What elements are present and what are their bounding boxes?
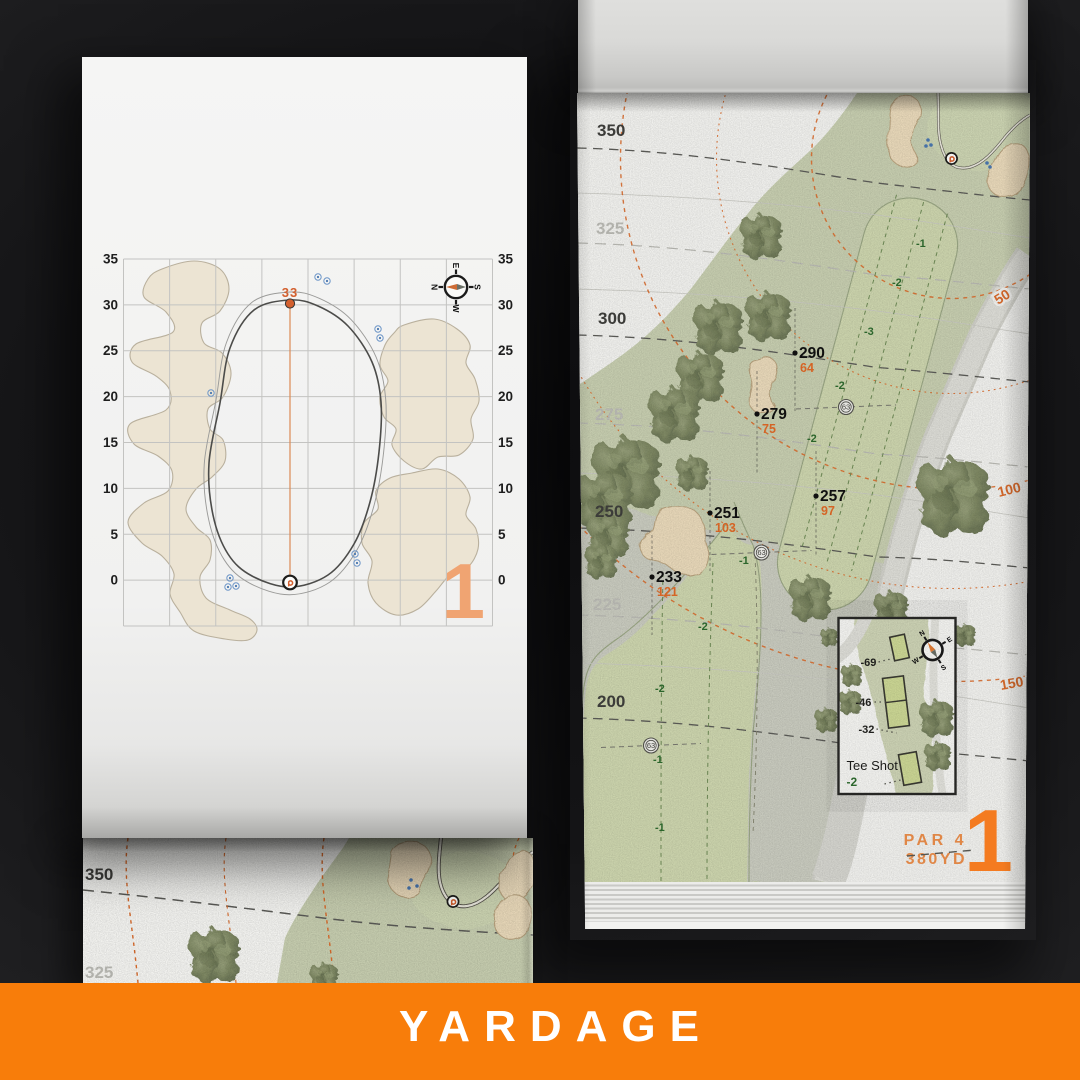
svg-text:1: 1 [964,791,1013,882]
svg-text:30: 30 [498,297,513,312]
svg-text:35: 35 [498,252,514,267]
svg-text:0: 0 [110,573,118,588]
svg-text:15: 15 [498,435,514,450]
svg-text:33: 33 [282,285,298,300]
svg-text:10: 10 [103,481,118,496]
svg-text:N: N [430,284,440,290]
svg-text:W: W [451,304,461,313]
svg-text:5: 5 [110,527,118,542]
svg-text:25: 25 [103,343,119,358]
svg-text:5: 5 [498,527,506,542]
svg-text:10: 10 [498,481,513,496]
svg-text:25: 25 [498,343,514,358]
svg-text:0: 0 [498,573,506,588]
svg-text:PAR 4: PAR 4 [904,832,967,849]
svg-text:E: E [451,263,461,269]
svg-text:20: 20 [498,389,513,404]
svg-text:1: 1 [442,547,485,635]
svg-text:20: 20 [103,389,118,404]
svg-text:S: S [473,284,483,290]
svg-text:35: 35 [103,252,119,267]
svg-text:15: 15 [103,435,119,450]
svg-text:30: 30 [103,297,118,312]
